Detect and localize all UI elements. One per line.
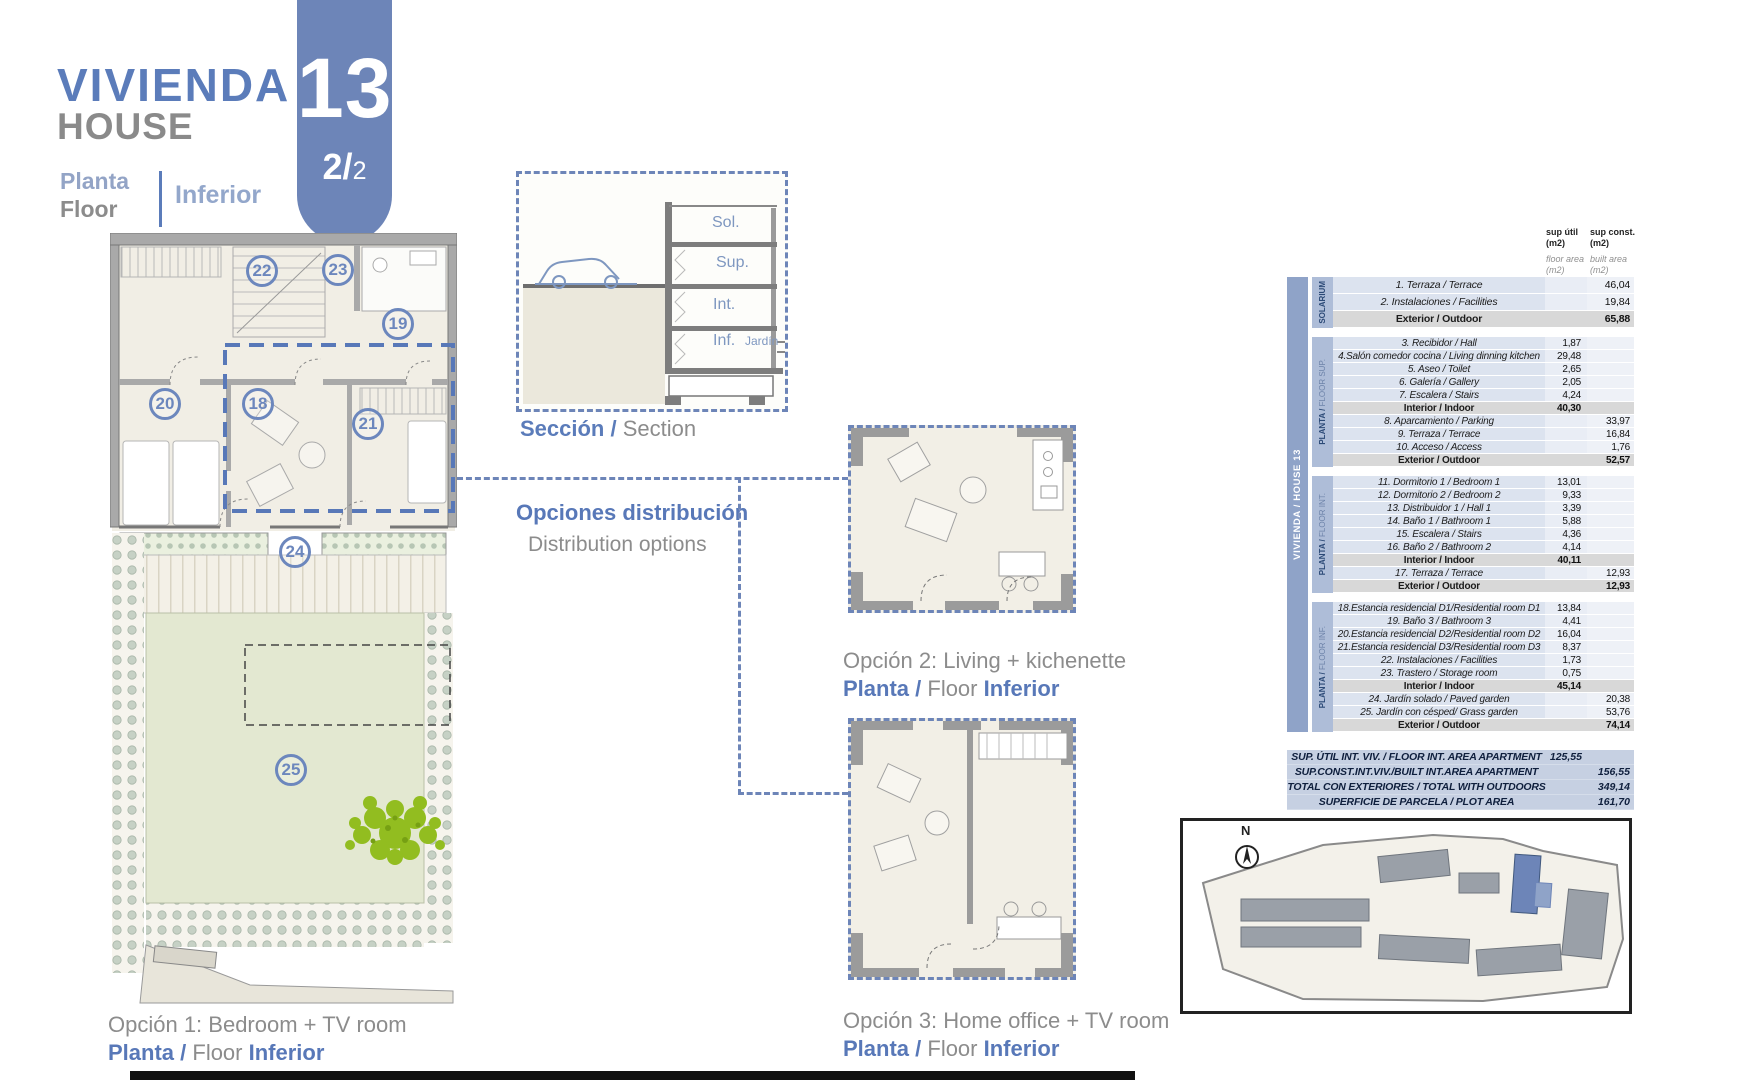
house-number: 13 (297, 46, 392, 130)
table-row: 14. Baño 1 / Bathroom 15,88 (1333, 515, 1634, 528)
table-row: 19. Baño 3 / Bathroom 34,41 (1333, 615, 1634, 628)
area-table-summary: SUP. ÚTIL INT. VIV. / FLOOR INT. AREA AP… (1287, 748, 1634, 810)
table-section-label: SOLARIUM (1312, 277, 1333, 328)
option3-title: Opción 3: Home office + TV room (843, 1008, 1169, 1033)
room-badge-23: 23 (322, 254, 354, 286)
option1-floor-line: Planta / Floor Inferior (108, 1040, 324, 1066)
summary-row: SUP. ÚTIL INT. VIV. / FLOOR INT. AREA AP… (1287, 750, 1634, 765)
table-row: 20.Estancia residencial D2/Residential r… (1333, 628, 1634, 641)
table-row: 18.Estancia residencial D1/Residential r… (1333, 602, 1634, 615)
table-section: SOLARIUM1. Terraza / Terrace46,042. Inst… (1312, 277, 1634, 328)
site-plan-box: N (1180, 818, 1632, 1014)
option2-title: Opción 2: Living + kichenette (843, 648, 1126, 673)
section-caption-en: Section (623, 416, 696, 441)
table-row: 25. Jardín con césped/ Grass garden53,76 (1333, 706, 1634, 719)
car-outline (535, 259, 637, 288)
table-row: 2. Instalaciones / Facilities19,84 (1333, 294, 1634, 311)
option2-floor-line: Planta / Floor Inferior (843, 676, 1059, 702)
room-badge-19: 19 (382, 308, 414, 340)
room-badge-25: 25 (275, 754, 307, 786)
section-level-inf: Inf. (713, 332, 735, 350)
table-section-label: PLANTA / FLOOR INF. (1312, 602, 1333, 732)
table-row: 10. Acceso / Access1,76 (1333, 441, 1634, 454)
page-current: 2/ (323, 146, 353, 187)
distribution-title-es: Opciones distribución (516, 500, 748, 526)
floor-plan-drawing (110, 233, 457, 1005)
option2-floor-es: Planta / (843, 676, 921, 701)
table-side-label: VIVIENDA / HOUSE 13 (1292, 449, 1303, 560)
table-row: 17. Terraza / Terrace12,93 (1333, 567, 1634, 580)
option3-floor-value: Inferior (984, 1036, 1060, 1061)
floor-value: Inferior (175, 181, 261, 210)
option1-floor-es: Planta / (108, 1040, 186, 1065)
option1-caption: Opción 1: Bedroom + TV room (108, 1012, 407, 1038)
table-row: 6. Galería / Gallery2,05 (1333, 376, 1634, 389)
page-total: 2 (353, 157, 367, 185)
table-side-bar: VIVIENDA / HOUSE 13 (1287, 277, 1308, 732)
distribution-title-en: Distribution options (528, 533, 707, 557)
option2-floor-value: Inferior (984, 676, 1060, 701)
table-section-label: PLANTA / FLOOR SUP. (1312, 337, 1333, 467)
section-level-int: Int. (713, 296, 735, 314)
house-number-badge: 13 2/2 (297, 0, 392, 243)
table-row: 24. Jardín solado / Paved garden20,38 (1333, 693, 1634, 706)
table-subheader-built-area: built area (m2) (1590, 254, 1636, 277)
table-row: 22. Instalaciones / Facilities1,73 (1333, 654, 1634, 667)
room-badge-18: 18 (242, 388, 274, 420)
option2-plan (848, 425, 1076, 613)
area-table: SOLARIUM1. Terraza / Terrace46,042. Inst… (1312, 277, 1634, 732)
option2-floor-en: Floor (927, 676, 977, 701)
divider (159, 171, 162, 227)
summary-row: SUP.CONST.INT.VIV./BUILT INT.AREA APARTM… (1287, 765, 1634, 780)
room-badge-21: 21 (352, 408, 384, 440)
table-row: Exterior / Outdoor74,14 (1333, 719, 1634, 732)
floor-label-es: Planta (60, 168, 129, 196)
site-plan-drawing (1183, 821, 1629, 1011)
table-row: 9. Terraza / Terrace16,84 (1333, 428, 1634, 441)
floor-label-en: Floor (60, 196, 129, 224)
table-row: 11. Dormitorio 1 / Bedroom 113,01 (1333, 476, 1634, 489)
option3-caption: Opción 3: Home office + TV room (843, 1008, 1169, 1034)
table-row: 16. Baño 2 / Bathroom 24,14 (1333, 541, 1634, 554)
page-title-en: HOUSE (57, 106, 194, 148)
section-drawing-box: Sol. Sup. Int. Inf. Jardín (516, 171, 788, 412)
option1-title: Opción 1: Bedroom + TV room (108, 1012, 407, 1037)
room-badge-22: 22 (246, 255, 278, 287)
table-header-floor-area: sup útil(m2) (1546, 227, 1588, 250)
table-row: Exterior / Outdoor52,57 (1333, 454, 1634, 467)
option1-floor-en: Floor (192, 1040, 242, 1065)
connector-line (738, 477, 741, 795)
page-title: VIVIENDA (57, 58, 290, 112)
option3-floor-en: Floor (927, 1036, 977, 1061)
floor-label: Planta Floor (60, 168, 129, 223)
room-badge-20: 20 (149, 388, 181, 420)
option2-caption: Opción 2: Living + kichenette (843, 648, 1126, 674)
summary-row: SUPERFICIE DE PARCELA / PLOT AREA161,70 (1287, 795, 1634, 810)
table-section: PLANTA / FLOOR INF.18.Estancia residenci… (1312, 602, 1634, 732)
section-level-sol: Sol. (712, 214, 740, 232)
table-row: 23. Trastero / Storage room0,75 (1333, 667, 1634, 680)
connector-line (738, 792, 848, 795)
table-row: 1. Terraza / Terrace46,04 (1333, 277, 1634, 294)
option3-floor-line: Planta / Floor Inferior (843, 1036, 1059, 1062)
section-caption: Sección / Section (520, 416, 696, 442)
section-drawing (519, 174, 785, 409)
table-section: PLANTA / FLOOR SUP.3. Recibidor / Hall1,… (1312, 337, 1634, 467)
table-row: Interior / Indoor40,11 (1333, 554, 1634, 567)
table-header-built-area: sup const.(m2) (1590, 227, 1636, 250)
table-row: 21.Estancia residencial D3/Residential r… (1333, 641, 1634, 654)
room-badge-24: 24 (279, 536, 311, 568)
section-level-sup: Sup. (716, 254, 749, 272)
plan-sheet: { "header": { "title_es": "VIVIENDA", "t… (0, 0, 1746, 1080)
option3-plan (848, 718, 1076, 980)
table-section: PLANTA / FLOOR INT.11. Dormitorio 1 / Be… (1312, 476, 1634, 593)
section-caption-es: Sección / (520, 416, 617, 441)
table-row: 3. Recibidor / Hall1,87 (1333, 337, 1634, 350)
table-row: 13. Distribuidor 1 / Hall 13,39 (1333, 502, 1634, 515)
table-row: Interior / Indoor45,14 (1333, 680, 1634, 693)
north-indicator: N (1241, 823, 1250, 838)
option1-floor-value: Inferior (249, 1040, 325, 1065)
option3-floor-es: Planta / (843, 1036, 921, 1061)
table-row: Interior / Indoor40,30 (1333, 402, 1634, 415)
table-row: 15. Escalera / Stairs4,36 (1333, 528, 1634, 541)
table-section-label: PLANTA / FLOOR INT. (1312, 476, 1333, 593)
footer-bar (130, 1071, 1135, 1080)
table-row: 8. Aparcamiento / Parking33,97 (1333, 415, 1634, 428)
table-row: 5. Aseo / Toilet2,65 (1333, 363, 1634, 376)
connector-line (457, 477, 848, 480)
table-row: 4.Salón comedor cocina / Living dinning … (1333, 350, 1634, 363)
page-indicator: 2/2 (297, 146, 392, 188)
section-level-garden: Jardín (745, 334, 778, 348)
summary-row: TOTAL CON EXTERIORES / TOTAL WITH OUTDOO… (1287, 780, 1634, 795)
table-row: 12. Dormitorio 2 / Bedroom 29,33 (1333, 489, 1634, 502)
table-row: 7. Escalera / Stairs4,24 (1333, 389, 1634, 402)
table-row: Exterior / Outdoor12,93 (1333, 580, 1634, 593)
table-subheader-floor-area: floor area (m2) (1546, 254, 1588, 277)
table-row: Exterior / Outdoor65,88 (1333, 311, 1634, 328)
